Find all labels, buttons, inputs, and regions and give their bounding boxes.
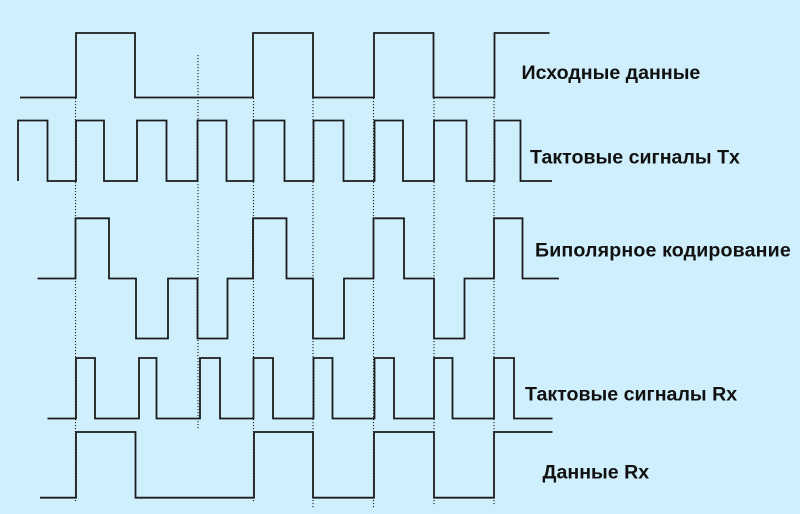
svg-text:Тактовые сигналы Tx: Тактовые сигналы Tx — [530, 146, 740, 168]
svg-text:Биполярное кодирование: Биполярное кодирование — [535, 239, 791, 261]
svg-text:Данные Rx: Данные Rx — [543, 462, 650, 484]
svg-text:Тактовые сигналы Rx: Тактовые сигналы Rx — [525, 383, 737, 405]
svg-text:Исходные данные: Исходные данные — [522, 62, 701, 84]
